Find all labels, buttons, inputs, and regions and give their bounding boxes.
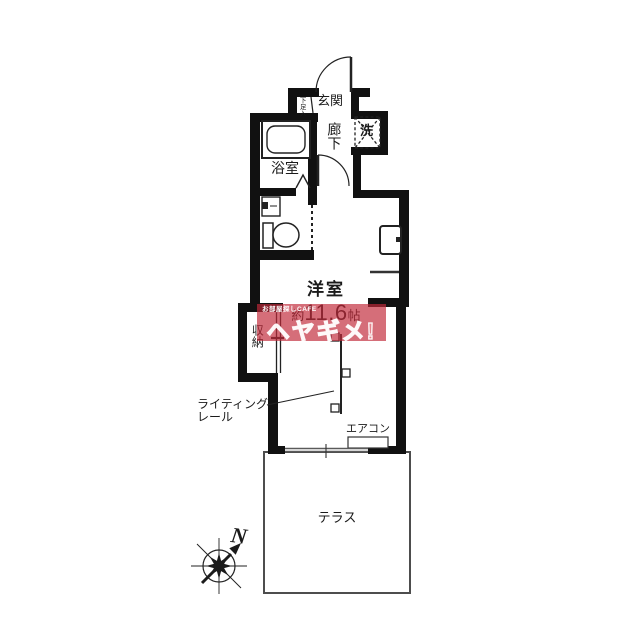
hallway-label: 廊下 bbox=[326, 122, 341, 158]
lighting-rail-label-line2: レール bbox=[197, 411, 268, 424]
sink-icon bbox=[262, 197, 280, 216]
bath-folding-door-icon bbox=[296, 175, 310, 188]
aircon-label: エアコン bbox=[346, 423, 390, 435]
room-door-icon bbox=[318, 155, 349, 186]
lighting-rail-label: ライティング レール bbox=[197, 398, 268, 424]
terrace-label: テラス bbox=[287, 511, 387, 525]
bathtub-icon bbox=[262, 121, 310, 158]
toilet-icon bbox=[263, 223, 299, 248]
shoe-cupboard-label: 下足入 bbox=[298, 97, 305, 113]
watermark-large-text: ヘヤギメ! bbox=[257, 312, 386, 346]
kitchen-unit-icon bbox=[370, 226, 401, 272]
floor-plan: 玄関 下足入 廊下 洗 浴室 洋室 約11.6帖 収納 ライティング レール エ… bbox=[0, 0, 640, 640]
room-name-label: 洋室 bbox=[276, 281, 376, 300]
compass-north-label: N bbox=[229, 523, 248, 549]
bathroom-label: 浴室 bbox=[271, 161, 299, 176]
washer-label: 洗 bbox=[360, 124, 373, 138]
entrance-label: 玄関 bbox=[317, 94, 343, 108]
aircon-unit-icon bbox=[348, 437, 388, 448]
